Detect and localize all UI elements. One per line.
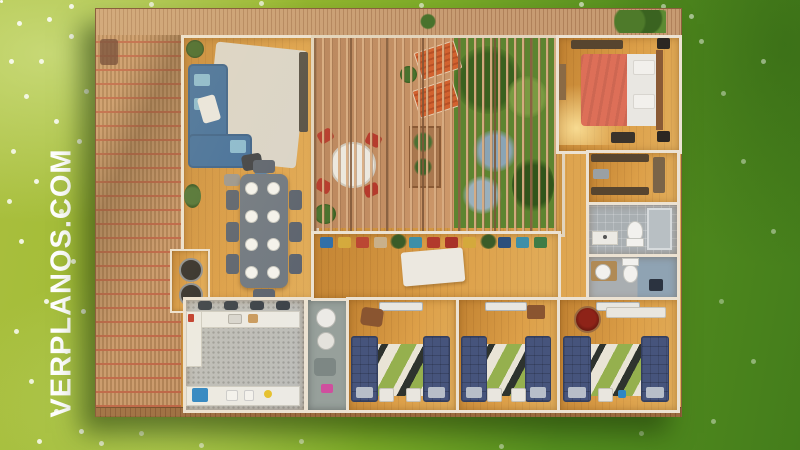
fixture-gray [314,358,336,376]
kitchen-counter-top [186,311,300,328]
bench-cushion [409,237,422,248]
potted-plant [186,40,204,58]
ac-unit [379,302,423,311]
place-setting [245,266,258,279]
potted-plant [400,66,417,83]
bed-pillow [428,387,445,398]
toilet-tank [626,238,644,247]
bed-pillow [466,387,482,398]
bed-bench [611,132,635,143]
faucet [603,235,607,239]
potted-plant [480,234,497,249]
courtyard-pergola [311,35,565,237]
planter-leaves [413,132,433,152]
bed-pillow [633,94,655,109]
single-bed-navy [351,336,378,402]
geometric-rug [588,344,644,396]
dining-chair [289,190,302,210]
place-setting [267,182,280,195]
bed-pillow [568,387,586,398]
planter-leaves [414,158,432,176]
single-bed-navy [525,336,551,402]
hallway [311,231,561,301]
deck-grill [100,39,118,65]
desk [598,388,613,402]
deck-top [96,9,681,36]
floor-drain-dark [649,279,663,291]
grill-burner [179,258,203,282]
bed-pillow [646,387,664,398]
place-setting [245,182,258,195]
bench-cushion [374,237,387,248]
runner-rug [401,247,466,286]
sink-item [228,314,242,324]
bed-pillow [530,387,546,398]
watermark: VERPLANOS.COM [46,148,79,417]
shrub-light [506,76,548,118]
bar-stool [250,301,264,310]
wardrobe [571,40,623,49]
courtyard-garden [454,38,556,228]
master-bedroom [556,35,682,154]
bedroom-1 [346,297,459,413]
shrub-dark [512,156,554,214]
bench-cushion [534,237,547,248]
tv-wall-unit [299,52,308,132]
bench-cushion [516,237,529,248]
screenshot: VERPLANOS.COM [0,0,800,450]
desk [379,388,394,402]
nightstand [657,131,670,142]
appliance-white [244,390,254,401]
toilet-bowl [623,265,638,283]
sink-counter [592,231,618,245]
closet-shelf [653,157,665,193]
round-sink [595,264,611,280]
single-bed-navy [563,336,591,402]
desk [511,388,526,402]
flower-bluegray [462,176,502,214]
planter-box [409,126,441,188]
washer-round [316,308,336,328]
potted-plant [184,184,201,208]
bench-cushion [463,237,476,248]
pink-towel [321,384,333,393]
bar-stool [224,301,238,310]
place-setting [245,238,258,251]
bench-cushion [338,237,351,248]
bench-cushion [320,237,333,248]
pouf-brown [360,307,384,328]
bench-cushion [356,237,369,248]
geometric-rug [369,344,430,396]
kitchen [183,297,307,413]
red-item [188,314,194,322]
pergola-trellis-deck [96,35,181,407]
place-setting [267,238,280,251]
blue-toy [618,390,626,398]
place-setting [267,266,280,279]
ac-unit [485,302,527,311]
potted-plants [614,10,666,33]
bench-cushion [445,237,458,248]
bedroom-3 [557,297,680,413]
wildflower-speckles [0,0,3,3]
bar-stool [198,301,212,310]
dining-chair [289,254,302,274]
single-bed-navy [423,336,450,402]
dining-table [240,174,288,288]
bathroom-1 [586,202,680,258]
dining-chair [253,160,275,173]
place-setting [267,210,280,223]
bench-cushion [427,237,440,248]
bathroom-2 [586,254,680,303]
cutting-board [248,314,258,323]
potted-plant-small [416,13,440,30]
round-chair-darkred [574,306,601,333]
shelf-desk-white [606,307,666,318]
nightstand [657,38,670,49]
appliance-white [226,390,238,401]
closet-wardrobe [591,154,649,162]
sink-round [317,332,335,350]
single-bed-navy [461,336,487,402]
bed-pillow [633,60,655,75]
cabinet-blue [192,388,208,402]
potted-plant [314,204,336,224]
sofa-cushion [230,140,246,153]
bedroom-2 [456,297,560,413]
closet-wardrobe [591,187,649,195]
dining-chair [226,190,239,210]
cabinet-brown [527,305,545,319]
dining-chair [226,254,239,274]
glass-shower [647,208,672,250]
house-plan [95,8,682,417]
dining-chair [289,222,302,242]
bar-stool [276,301,290,310]
pouf-gray [224,174,240,186]
sofa-cushion [194,74,210,86]
potted-plant [390,234,407,249]
round-table [330,142,376,188]
flower-bluegray [472,130,518,172]
desk [487,388,502,402]
bed-coral-blanket [581,54,627,126]
headboard [656,50,663,130]
place-setting [245,210,258,223]
walk-in-closet [586,150,680,206]
desk [406,388,421,402]
dining-chair [226,222,239,242]
bench-cushion [498,237,511,248]
closet-bench [593,169,609,179]
cabinet-left [559,64,566,100]
bed-pillow [356,387,373,398]
fruit-bowl [264,390,272,398]
single-bed-navy [641,336,669,402]
